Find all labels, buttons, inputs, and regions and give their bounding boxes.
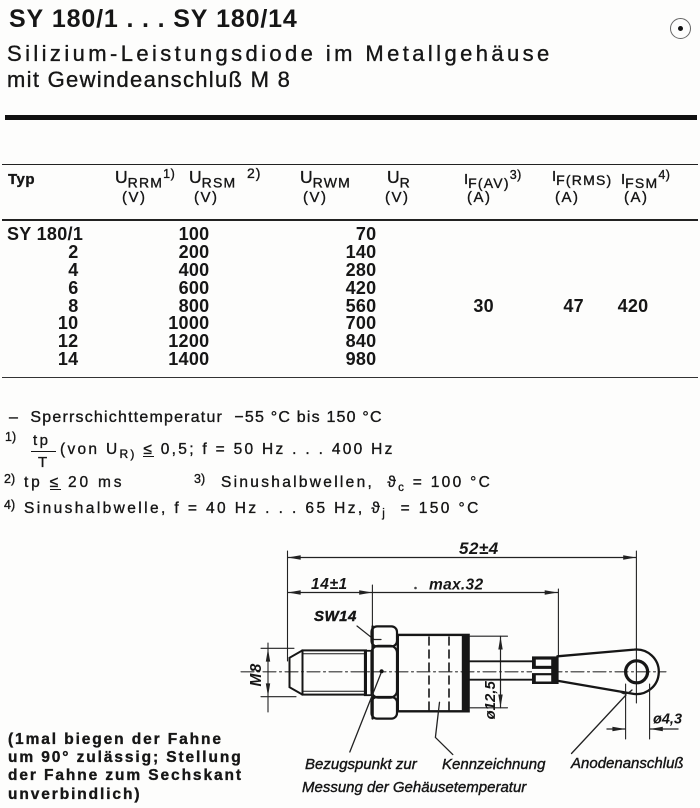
svg-text:14±1: 14±1 (311, 576, 348, 593)
svg-text:Anodenanschluß: Anodenanschluß (570, 755, 684, 772)
svg-text:ø4,3: ø4,3 (653, 712, 682, 728)
svg-text:Messung der Gehäusetemperatur: Messung der Gehäusetemperatur (302, 779, 527, 796)
svg-text:Bezugspunkt zur: Bezugspunkt zur (305, 756, 418, 773)
svg-text:Kennzeichnung: Kennzeichnung (442, 756, 546, 773)
svg-text:52±4: 52±4 (459, 539, 499, 558)
svg-text:max.32: max.32 (429, 577, 483, 594)
svg-text:ø12,5: ø12,5 (482, 680, 499, 719)
svg-text:SW14: SW14 (314, 608, 357, 625)
svg-text:M8: M8 (248, 663, 265, 687)
